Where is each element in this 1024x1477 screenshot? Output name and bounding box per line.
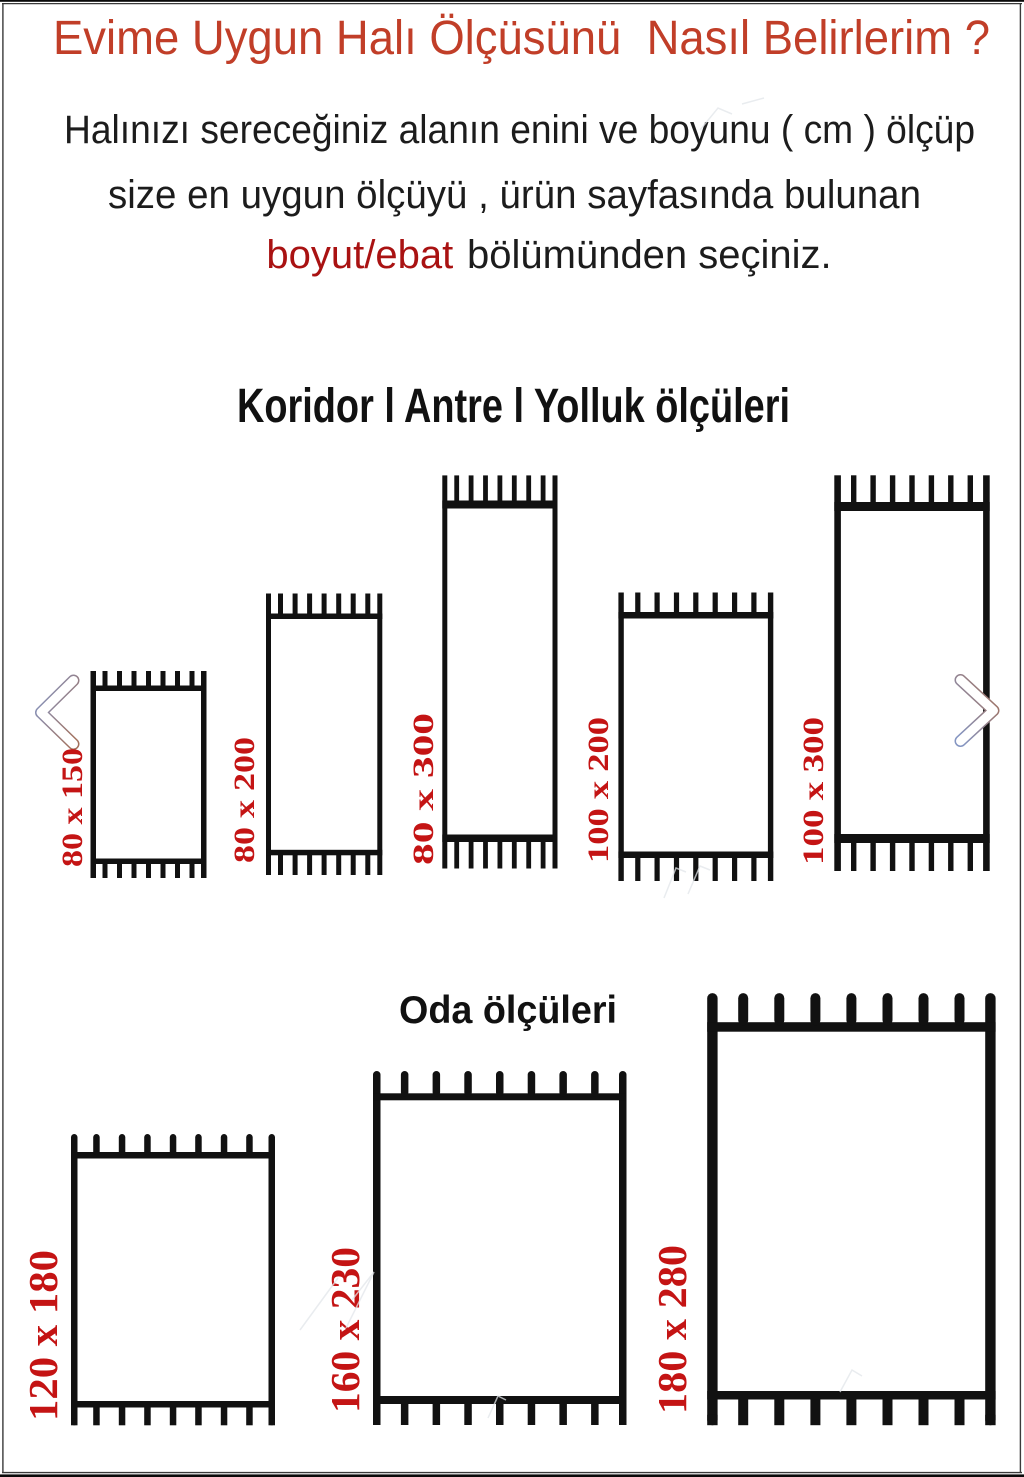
svg-text:Evime Uygun Halı Ölçüsünü Nas: Evime Uygun Halı Ölçüsünü Nasıl Belirler… [53, 12, 990, 65]
svg-text:Koridor l Antre l Yolluk ölçül: Koridor l Antre l Yolluk ölçüleri [237, 380, 790, 433]
svg-text:120 x 180: 120 x 180 [20, 1250, 66, 1421]
svg-text:100 x 200: 100 x 200 [582, 717, 615, 863]
svg-text:80 x 200: 80 x 200 [228, 737, 261, 863]
svg-text:180 x 280: 180 x 280 [649, 1245, 695, 1414]
svg-text:size en uygun ölçüyü , ürün sa: size en uygun ölçüyü , ürün sayfasında b… [108, 173, 921, 217]
svg-text:bölümünden seçiniz.: bölümünden seçiniz. [467, 233, 832, 277]
svg-text:160 x 230: 160 x 230 [322, 1247, 368, 1413]
svg-text:Halınızı sereceğiniz alanın en: Halınızı sereceğiniz alanın enini ve boy… [64, 108, 975, 152]
svg-text:80 x 150: 80 x 150 [56, 748, 89, 867]
svg-text:80 x 300: 80 x 300 [407, 713, 440, 865]
svg-text:Oda ölçüleri: Oda ölçüleri [399, 989, 617, 1032]
svg-text:boyut/ebat: boyut/ebat [266, 233, 453, 277]
svg-text:100 x 300: 100 x 300 [797, 717, 830, 865]
